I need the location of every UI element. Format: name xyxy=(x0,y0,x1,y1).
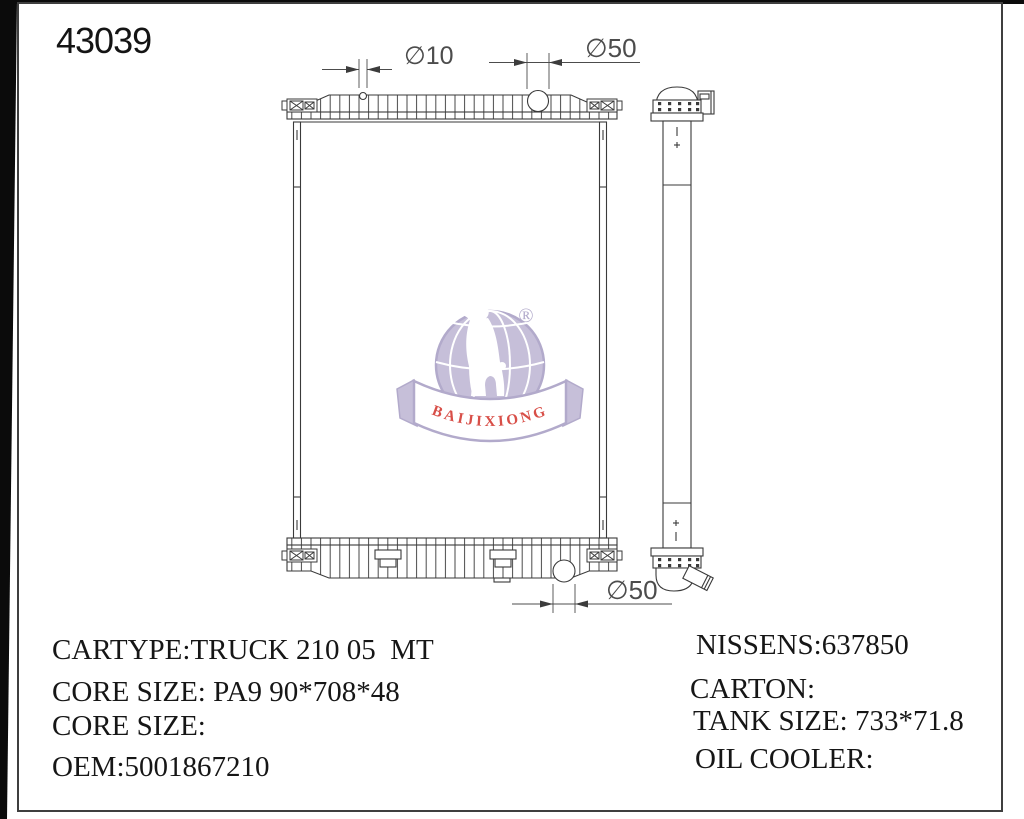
spec-core-size-2: CORE SIZE: xyxy=(52,712,206,741)
spec-cartype: CARTYPE:TRUCK 210 05 MT xyxy=(52,636,434,665)
top-gasket-strip xyxy=(287,112,617,119)
bracket-bottom-left xyxy=(282,549,317,562)
spec-oil-cooler: OIL COOLER: xyxy=(695,745,874,774)
bracket-bottom-right xyxy=(587,549,622,562)
spec-tank-size: TANK SIZE: 733*71.8 xyxy=(693,707,964,736)
top-tank xyxy=(287,95,617,112)
outlet-circle xyxy=(553,560,575,582)
bracket-top-left xyxy=(282,99,317,112)
spec-nissens: NISSENS:637850 xyxy=(696,631,909,660)
dimension-label-top-hole: ∅10 xyxy=(404,42,454,70)
dimension-label-filler-neck: ∅50 xyxy=(585,33,637,63)
registered-mark-icon: ® xyxy=(518,305,533,327)
right-side-channel xyxy=(600,122,607,538)
radiator-side-view xyxy=(651,87,714,591)
small-hole-circle xyxy=(360,93,367,100)
filler-neck-circle xyxy=(528,91,549,112)
bottom-gasket-strip xyxy=(287,538,617,545)
left-side-channel xyxy=(294,122,301,538)
dimension-label-bottom-outlet: ∅50 xyxy=(606,575,658,605)
spec-core-size: CORE SIZE: PA9 90*708*48 xyxy=(52,678,400,707)
brand-logo: ® BAIJIXIONG xyxy=(397,303,583,442)
spec-oem: OEM:5001867210 xyxy=(52,753,270,782)
spec-carton: CARTON: xyxy=(690,675,815,704)
bracket-top-right xyxy=(587,99,622,112)
